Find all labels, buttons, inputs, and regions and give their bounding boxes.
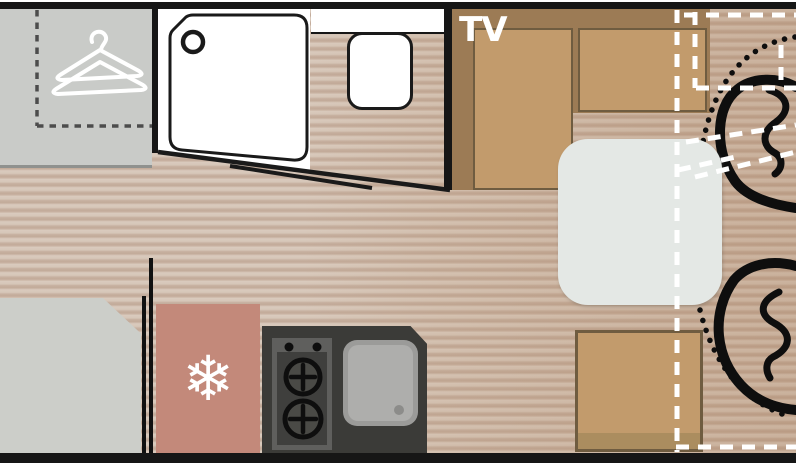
motorhome-floorplan: TV ❄ — [0, 0, 796, 466]
dashed-overlay-layer — [0, 0, 796, 466]
dashed-conversion-outline — [676, 10, 796, 452]
